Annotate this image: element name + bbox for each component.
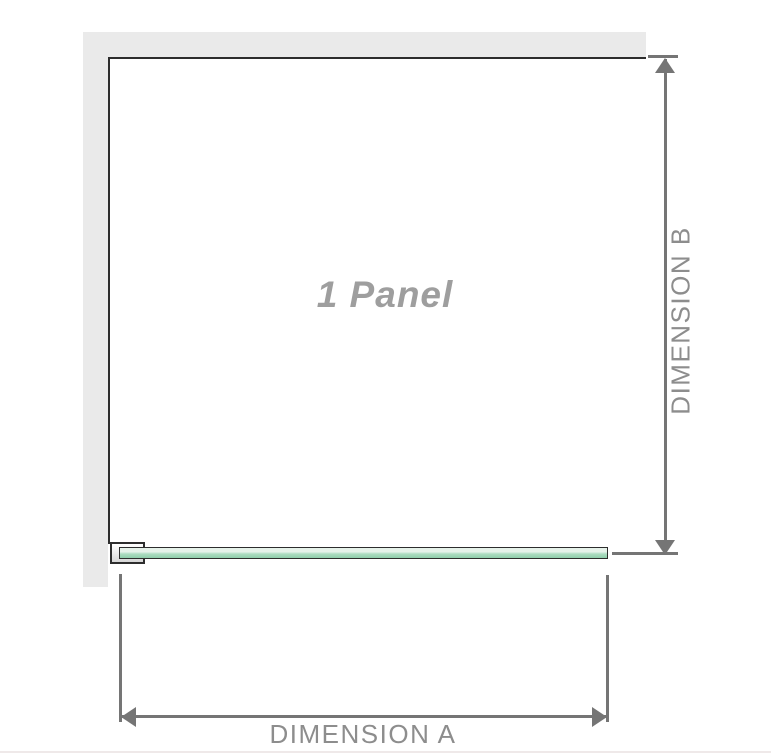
glass-panel [119, 547, 608, 559]
panel-count-label: 1 Panel [285, 270, 485, 320]
dimension-a-extension-right [606, 575, 609, 722]
dimension-a-label: DIMENSION A [263, 719, 463, 749]
panel-top-edge [108, 57, 646, 59]
dimension-b-label: DIMENSION B [668, 241, 695, 401]
page-bottom-edge [0, 751, 771, 753]
wall-top-band [83, 32, 646, 58]
arrow-right-icon [592, 707, 607, 727]
dimension-diagram: 1 Panel DIMENSION B DIMENSION A [0, 0, 771, 755]
arrow-up-icon [655, 58, 675, 73]
arrow-down-icon [655, 540, 675, 555]
panel-left-edge [108, 57, 110, 544]
dimension-a-extension-left [119, 574, 122, 722]
arrow-left-icon [121, 707, 136, 727]
wall-left-band [83, 32, 108, 587]
